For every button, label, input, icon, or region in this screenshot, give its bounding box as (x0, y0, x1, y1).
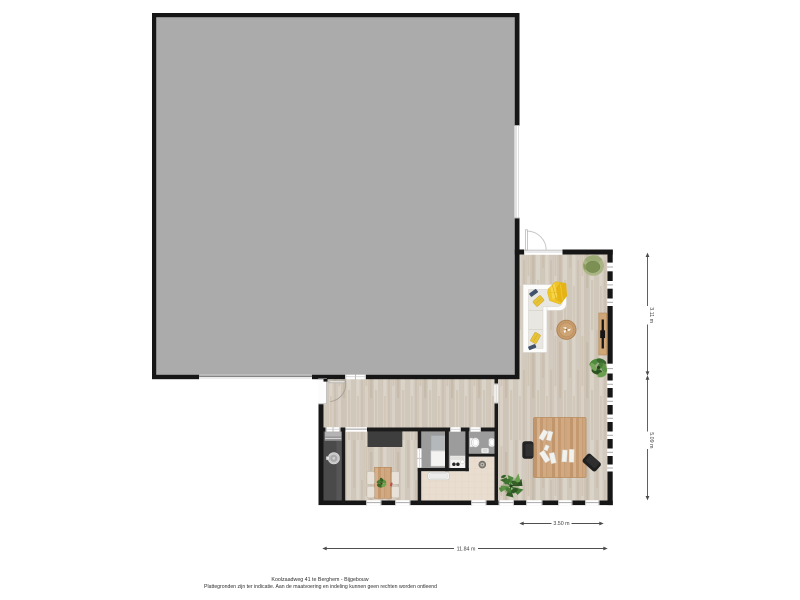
svg-text:Koolzaadweg 41 te Berghem - Bi: Koolzaadweg 41 te Berghem - Bijgebouw (271, 577, 368, 583)
svg-text:5.09 m: 5.09 m (648, 432, 654, 449)
svg-text:3.50 m: 3.50 m (553, 521, 570, 527)
svg-text:3.11 m: 3.11 m (648, 307, 654, 323)
svg-text:11.84 m: 11.84 m (457, 546, 476, 552)
svg-text:Plattegronden zijn ter indicat: Plattegronden zijn ter indicatie. Aan de… (204, 584, 437, 590)
